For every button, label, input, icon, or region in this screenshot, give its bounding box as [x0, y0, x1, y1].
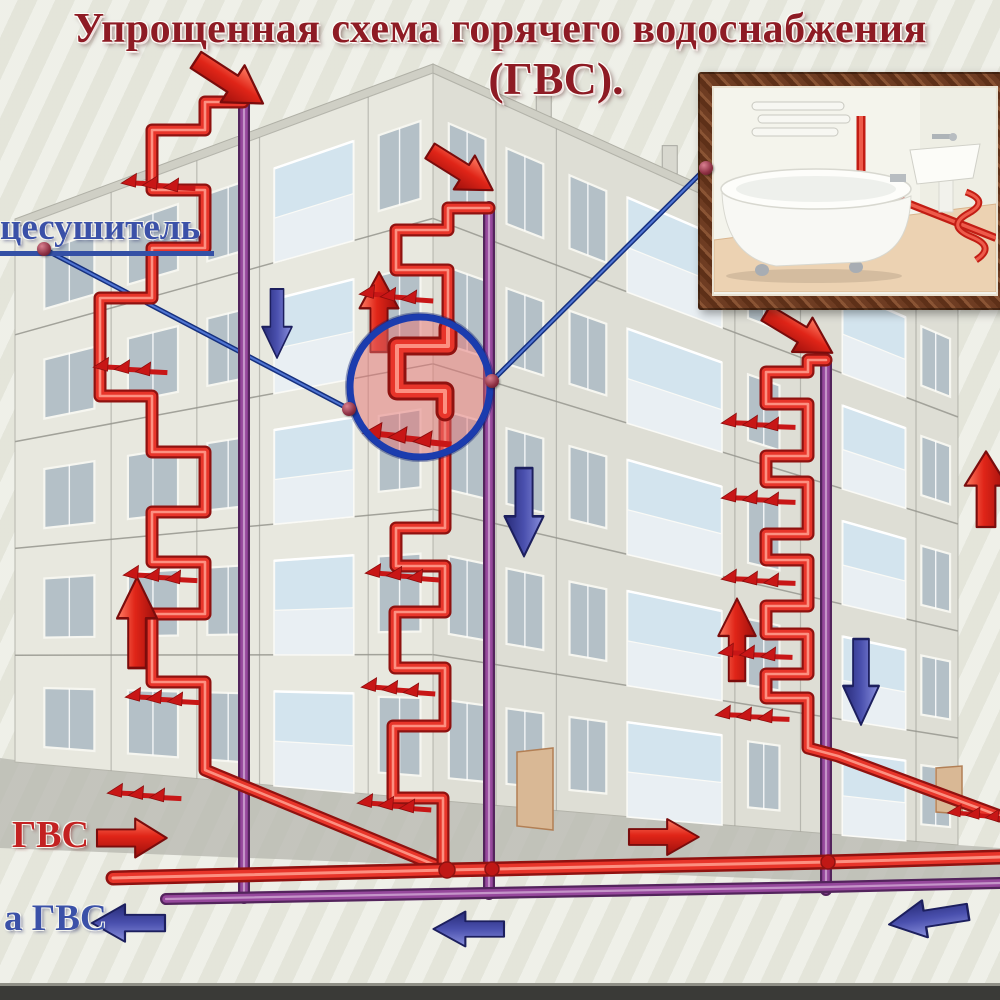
bottom-border-bar [0, 986, 1000, 1000]
ground-edge-line [0, 983, 1000, 986]
faucet-icon [932, 134, 950, 139]
diagram-page: Упрощенная схема горячего водоснабжения … [0, 0, 1000, 1000]
towel-dryer-label: цесушитель [0, 206, 214, 256]
connector-dot-icon [485, 374, 499, 388]
return-main-arrow-icon [886, 893, 971, 943]
title-line-1: Упрощенная схема горячего водоснабжения [0, 6, 1000, 53]
return-main-arrow-icon [433, 912, 504, 947]
connector-dot-icon [342, 402, 356, 416]
hot-supply-label: ГВС [12, 813, 89, 857]
bathroom-photo [712, 86, 998, 296]
connector-dot-icon [699, 161, 713, 175]
supply-flow-up-arrow-icon [965, 451, 1000, 527]
return-main-pipe [166, 883, 1000, 899]
tub-faucet-icon [890, 174, 906, 182]
magnifier-circle [346, 313, 494, 461]
towel-warmer-photo [752, 102, 850, 136]
connector-dot-icon [37, 242, 51, 256]
return-label: а ГВС [4, 897, 107, 940]
bathroom-photo-frame [698, 72, 1000, 310]
